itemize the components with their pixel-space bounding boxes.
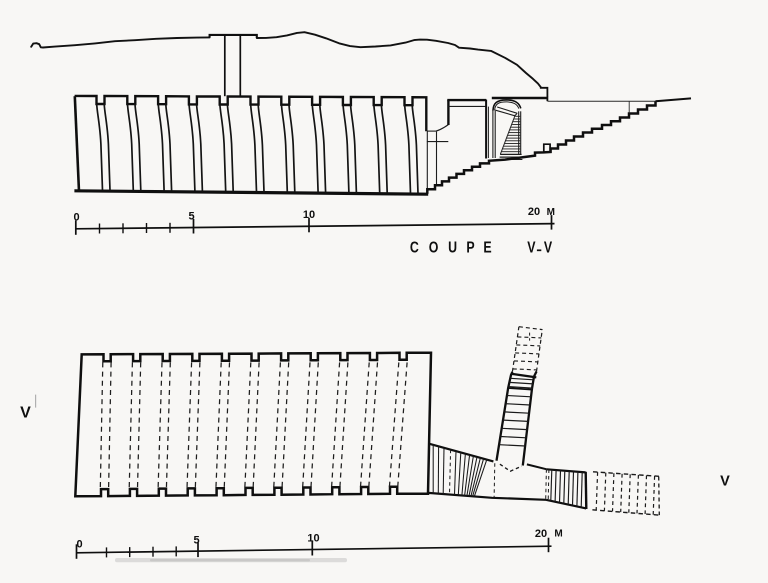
svg-text:V: V <box>544 238 553 256</box>
svg-text:M: M <box>547 207 555 218</box>
svg-text:V: V <box>20 404 31 421</box>
svg-text:C: C <box>410 238 419 256</box>
svg-text:E: E <box>483 238 491 256</box>
svg-text:20: 20 <box>535 528 547 540</box>
svg-text:0: 0 <box>76 538 82 550</box>
svg-text:U: U <box>448 238 457 256</box>
svg-text:M: M <box>554 529 562 540</box>
svg-text:10: 10 <box>307 533 319 545</box>
svg-text:0: 0 <box>73 212 79 224</box>
svg-text:O: O <box>429 238 439 256</box>
svg-text:P: P <box>466 238 474 256</box>
svg-text:10: 10 <box>303 209 315 221</box>
svg-text:20: 20 <box>528 206 540 218</box>
svg-text:V: V <box>720 473 730 489</box>
svg-text:5: 5 <box>193 535 199 547</box>
svg-text:V: V <box>527 238 536 256</box>
svg-text:5: 5 <box>188 210 194 222</box>
